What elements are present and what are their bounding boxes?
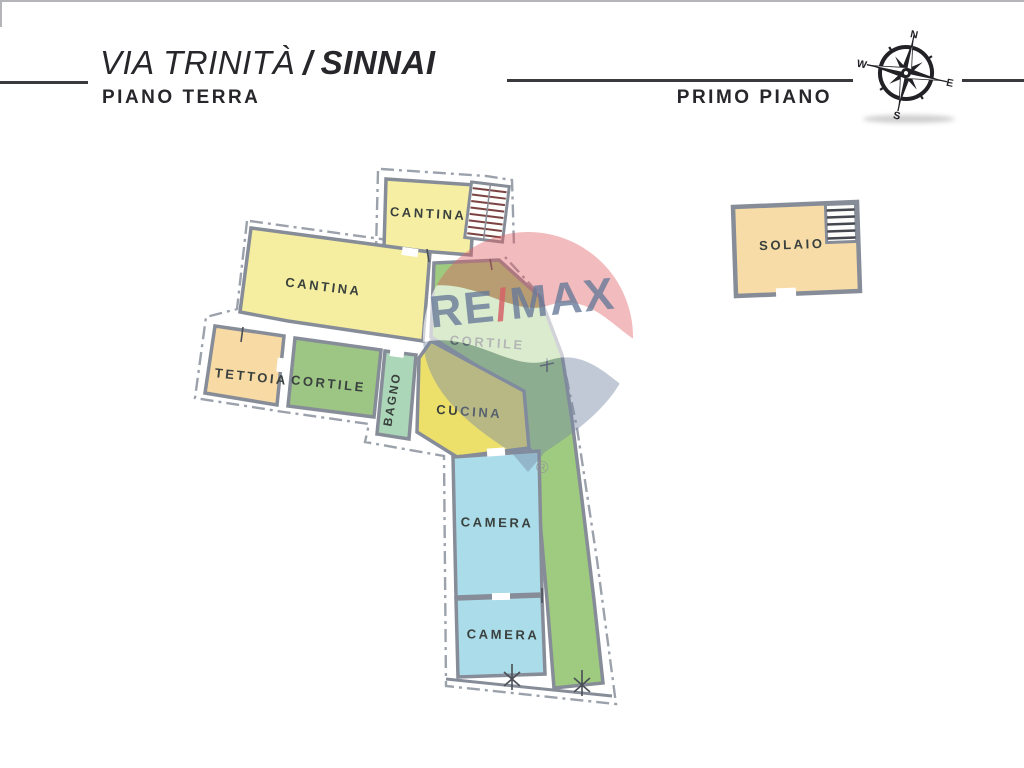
floor-plan-canvas: CANTINA CANTINA TETTOIA CORTILE BAGNO CO…: [0, 0, 1024, 768]
floor-plan-first: SOLAIO: [733, 202, 860, 297]
solaio-door-gap: [776, 288, 796, 298]
registered-trademark-symbol: ®: [536, 458, 549, 477]
floor-plan-page: VIA TRINITÀ/SINNAI PIANO TERRA PRIMO PIA…: [0, 0, 1024, 768]
stairs-top-cantina: [465, 182, 510, 242]
room-camera-lower-label: CAMERA: [467, 626, 540, 642]
stairs-solaio: [825, 203, 856, 242]
room-camera-upper-label: CAMERA: [461, 514, 534, 530]
room-solaio-label: SOLAIO: [759, 236, 825, 253]
